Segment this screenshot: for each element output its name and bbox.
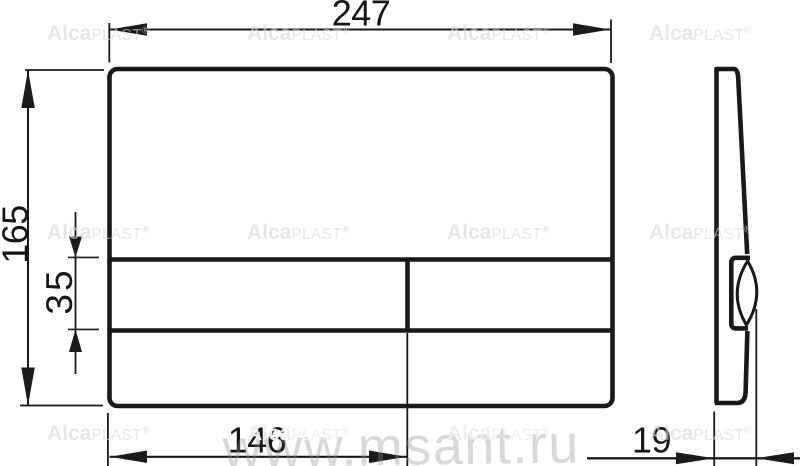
- svg-text:165: 165: [0, 205, 36, 264]
- svg-text:AlcaPLAST®: AlcaPLAST®: [447, 221, 550, 244]
- svg-text:AlcaPLAST®: AlcaPLAST®: [649, 221, 752, 244]
- svg-text:AlcaPLAST®: AlcaPLAST®: [247, 221, 350, 244]
- svg-text:AlcaPLAST®: AlcaPLAST®: [649, 22, 752, 45]
- svg-text:35: 35: [39, 267, 80, 314]
- svg-text:AlcaPLAST®: AlcaPLAST®: [447, 22, 550, 45]
- svg-text:AlcaPLAST®: AlcaPLAST®: [47, 221, 150, 244]
- svg-text:AlcaPLAST®: AlcaPLAST®: [47, 422, 150, 445]
- svg-text:AlcaPLAST®: AlcaPLAST®: [649, 422, 752, 445]
